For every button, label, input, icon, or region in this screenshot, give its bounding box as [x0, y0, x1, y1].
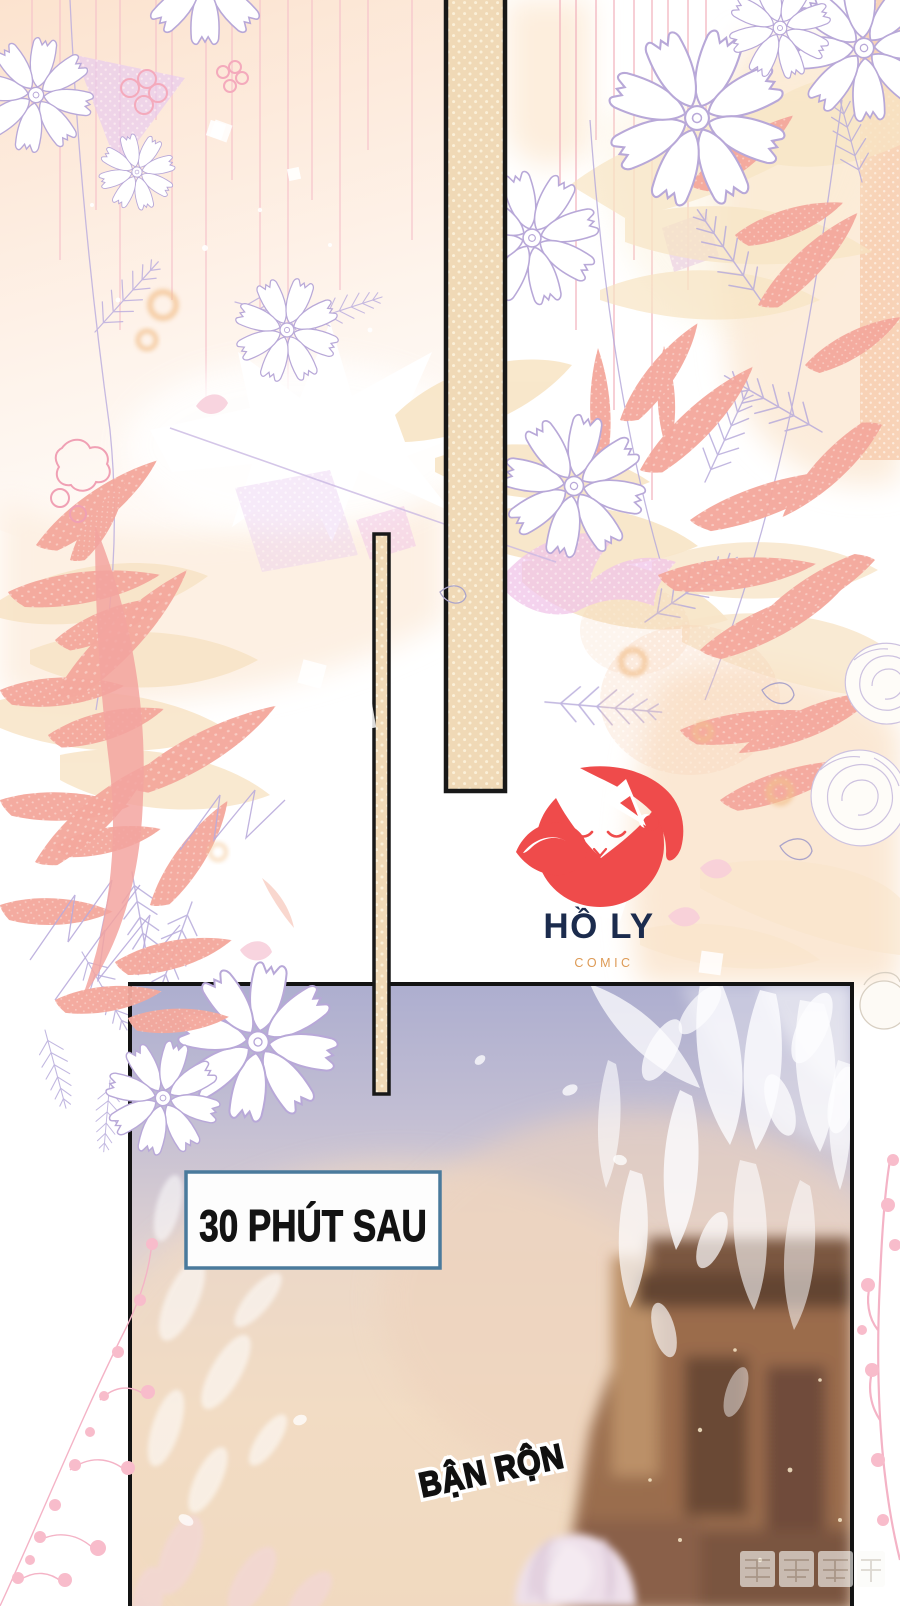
svg-text:COMIC: COMIC — [574, 956, 633, 970]
svg-text:HỒ LY: HỒ LY — [543, 906, 654, 946]
svg-text:30 PHÚT SAU: 30 PHÚT SAU — [199, 1200, 426, 1251]
